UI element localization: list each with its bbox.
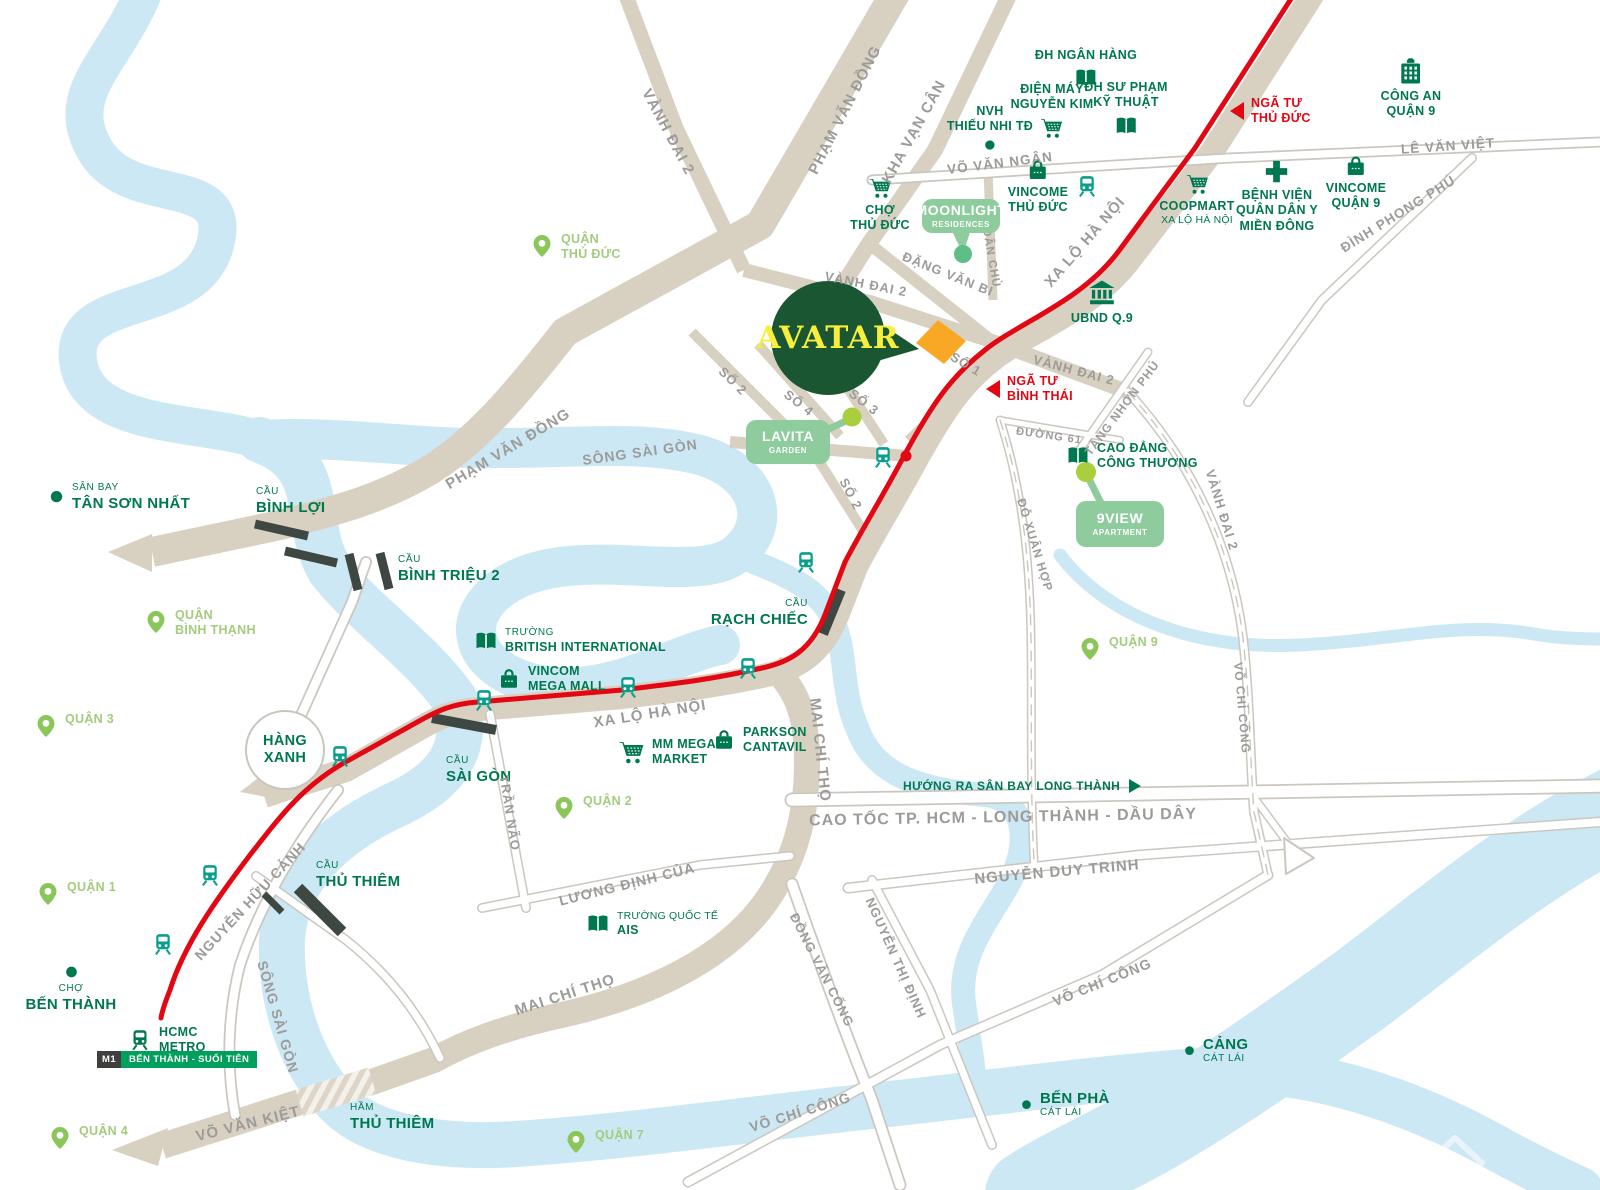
lavita-dot xyxy=(843,408,862,427)
9view-dot xyxy=(1076,462,1096,482)
metro-station-dot xyxy=(901,451,912,462)
road-dan-chu xyxy=(988,170,993,300)
road-vanh-dai-2-top xyxy=(622,0,744,270)
road-so-2-upper xyxy=(692,332,794,434)
map-canvas xyxy=(0,0,1600,1190)
map-page: { "map": { "project": {"name": "AVATAR",… xyxy=(0,0,1600,1190)
bridge-binh-trieu-b xyxy=(380,553,389,589)
moonlight-dot xyxy=(954,245,972,263)
